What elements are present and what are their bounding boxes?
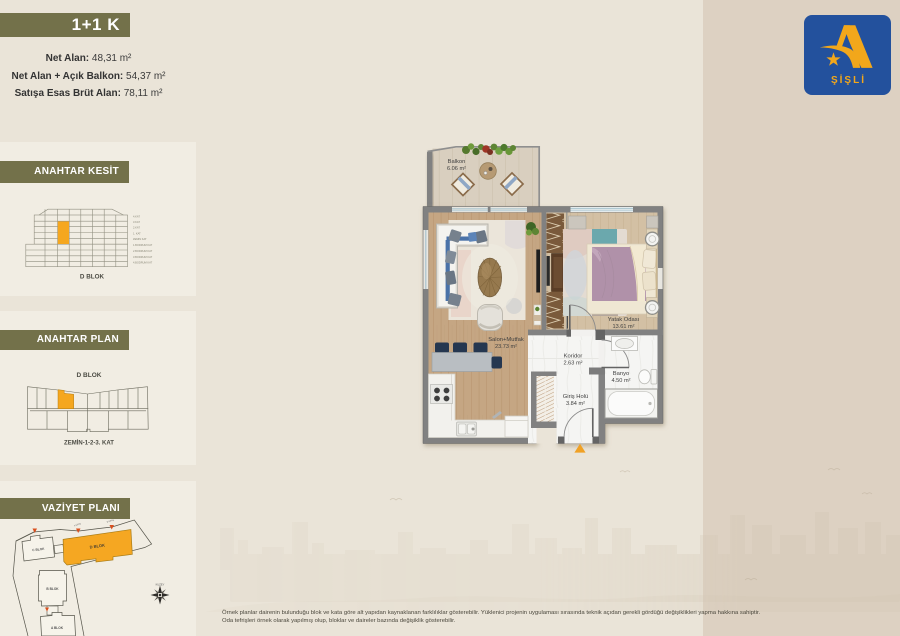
svg-text:ŞİŞLİ: ŞİŞLİ	[831, 73, 866, 86]
